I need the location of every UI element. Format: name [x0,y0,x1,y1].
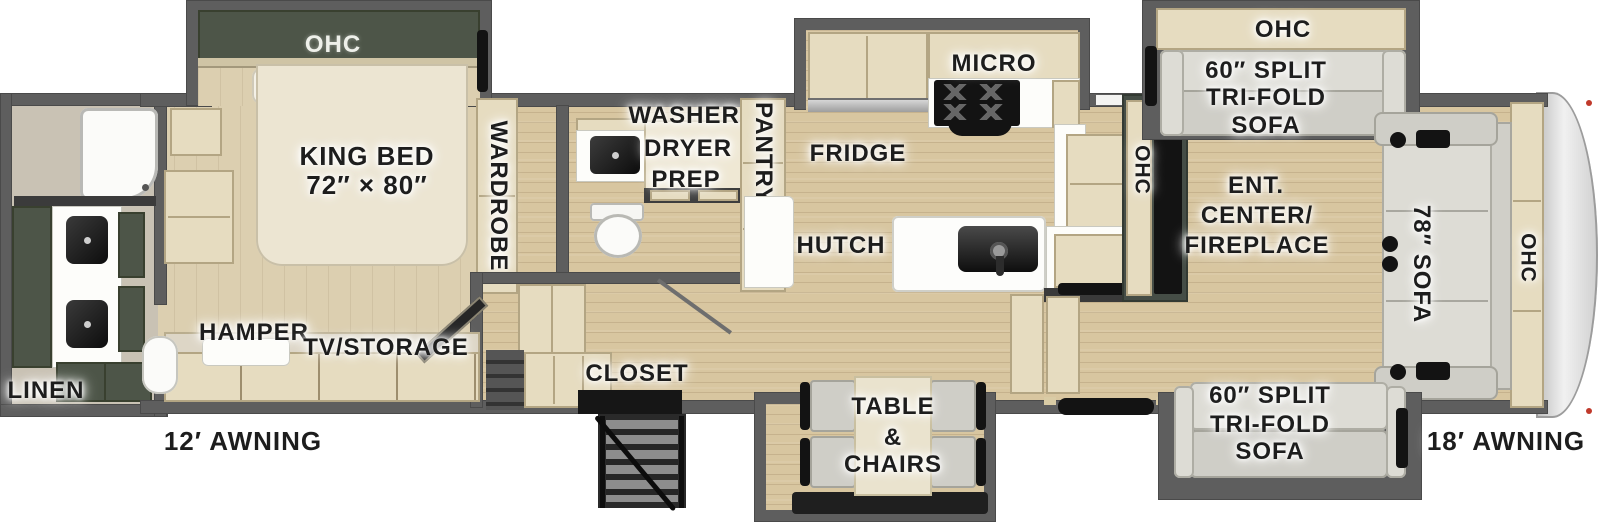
sink-2-drain [84,321,91,328]
burner-2 [976,84,1006,100]
front-sofa-seam-1 [1386,210,1488,212]
washer-label-3: PREP [651,168,720,192]
ent-label-2: CENTER/ [1201,204,1313,228]
hall-wardrobe-split [551,286,553,358]
king-bed-label-1: KING BED [299,143,434,169]
sofa-bottom-label-1: 60″ SPLIT [1209,384,1331,408]
ent-label-1: ENT. [1228,174,1284,198]
tail-marker-top [1586,100,1592,106]
vanity-cabinet-mid-1 [118,212,145,278]
dinette-label-1: TABLE [851,395,934,419]
sofa-top-arm-left [1160,50,1184,136]
bath-wall-left [556,105,569,273]
pantry-label: PANTRY [751,102,775,204]
hutch-label: HUTCH [797,234,886,258]
toilet-bowl [594,214,642,258]
king-bed-label-2: 72″ × 80″ [306,172,427,198]
cupholder-top [1390,132,1406,148]
stairs-rail-right [679,416,684,508]
front-sofa-seat [1382,118,1492,394]
entry-door-2-trim-left [1044,397,1056,405]
front-ohc-split-2 [1513,310,1541,312]
hutch-counter [744,196,794,288]
sofa-bottom-label-2: TRI-FOLD [1210,413,1330,437]
awning-label-left: 12′ AWNING [164,428,322,454]
chair-2-arm [800,438,810,486]
chair-3 [930,380,976,432]
tail-marker-bottom [1586,408,1592,414]
linen-cabinet-split [104,364,106,400]
ent-label-3: FIREPLACE [1184,234,1329,258]
exterior-stairs-steps [606,420,678,502]
sofa-bottom-window [1396,408,1408,468]
bedroom-slide-window [477,30,488,92]
sink-1-drain [84,237,91,244]
side-chair [142,336,178,394]
rear-bath-wall-left [0,93,12,417]
cupholder-bottom [1390,364,1406,380]
chair-1-arm [800,382,810,430]
entry-door-2 [1058,398,1154,415]
cupholder-mid-2 [1382,256,1398,272]
sofa-top-window [1145,46,1157,106]
burner-3 [940,104,970,120]
front-ohc-label: OHC [1518,233,1539,283]
dresser-split [168,216,230,218]
dinette-label-3: CHAIRS [844,453,942,477]
island-tv [1058,283,1132,295]
tray-bottom [1416,362,1450,380]
entry-landing [578,390,682,414]
chair-1 [810,380,856,432]
shower-drain [142,184,149,191]
washer-label-2: DRYER [644,137,732,161]
washer-label-1: WASHER/ [628,104,747,128]
micro-label: MICRO [952,52,1037,76]
side-cabinets-split [1070,183,1124,185]
bath-ledge [14,196,156,206]
burner-1 [940,84,970,100]
hamper-label: HAMPER [199,321,309,345]
wardrobe-label: WARDROBE [486,121,510,272]
fridge-steel-band [808,98,928,112]
vanity-cabinet-mid-2 [118,286,145,352]
sofa-bottom-label-3: SOFA [1235,440,1304,464]
chair-4-arm [976,438,986,486]
sofa-bottom-arm-left [1174,386,1194,478]
fridge-label: FRIDGE [810,142,907,166]
tray-top [1416,130,1450,148]
bath-sink-drain [612,152,619,159]
bedroom-ohc-label: OHC [305,33,361,57]
sofa-top-label-3: SOFA [1231,114,1300,138]
stove-front [948,122,1012,136]
sofa-top-label-2: TRI-FOLD [1206,86,1326,110]
folding-table-leaf-1 [1010,294,1044,394]
bedroom-steps [486,350,524,410]
chair-3-arm [976,382,986,430]
front-ohc-split-1 [1513,200,1541,202]
bottom-wall-b [676,400,760,414]
sofa-top-ohc-label: OHC [1255,18,1311,42]
closet-split-1 [553,356,555,404]
dinette-label-2: & [884,426,902,450]
fridge-split [866,36,868,98]
front-sofa-label: 78″ SOFA [1409,205,1433,323]
tv-storage-label: TV/STORAGE [303,336,469,360]
burner-4 [976,104,1006,120]
cupholder-mid-1 [1382,236,1398,252]
kitchen-faucet-spout [996,256,1004,276]
counter-end-cabinet [1052,80,1080,128]
closet-label: CLOSET [585,362,688,386]
floorplan-canvas: OHC KING BED 72″ × 80″ WARDROBE CLOSET W… [0,0,1600,528]
linen-label: LINEN [8,379,85,403]
awning-label-right: 18′ AWNING [1427,428,1585,454]
sofa-top-label-1: 60″ SPLIT [1205,59,1327,83]
folding-table-leaf-2 [1046,296,1080,394]
front-sofa-seam-2 [1386,300,1488,302]
front-cap [1536,92,1598,418]
hall-wall-h [470,272,760,284]
kitchen-ohc-label: OHC [1132,145,1153,195]
nightstand [170,108,222,156]
vanity-cabinet-left [12,206,52,368]
